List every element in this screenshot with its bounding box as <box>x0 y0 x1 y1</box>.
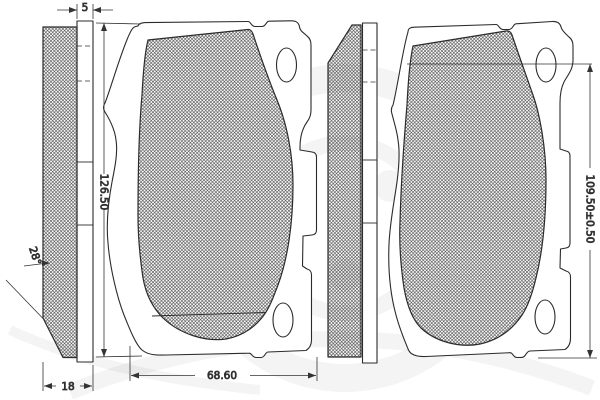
dim-label-68-60: 68.60 <box>207 370 237 382</box>
side-view-left <box>43 21 93 362</box>
backing-plate-edge <box>77 21 93 362</box>
rivet-hole-bottom <box>535 300 555 334</box>
dim-label-126-50: 126.50 <box>98 174 110 211</box>
rivet-hole-top <box>536 48 556 82</box>
dim-label-28deg: 28° <box>26 245 43 266</box>
friction-material <box>400 31 546 345</box>
dimension-backplate-thickness: 5 <box>57 2 113 19</box>
rivet-hole-bottom <box>273 303 293 337</box>
friction-material-edge <box>328 25 361 357</box>
side-view-middle <box>328 23 377 363</box>
friction-material-edge <box>43 27 77 358</box>
technical-drawing-page: 5 18 28° 126.50 68.60 <box>0 0 600 400</box>
dim-label-5: 5 <box>82 2 89 14</box>
dim-label-18: 18 <box>61 381 74 393</box>
front-view-left-pad <box>104 21 317 358</box>
front-view-right-pad <box>389 21 573 357</box>
backing-plate-edge <box>363 23 378 363</box>
dim-label-109-50: 109.50±0.50 <box>584 175 596 244</box>
rivet-hole-top <box>277 48 297 82</box>
brake-pad-drawing: 5 18 28° 126.50 68.60 <box>0 0 600 400</box>
